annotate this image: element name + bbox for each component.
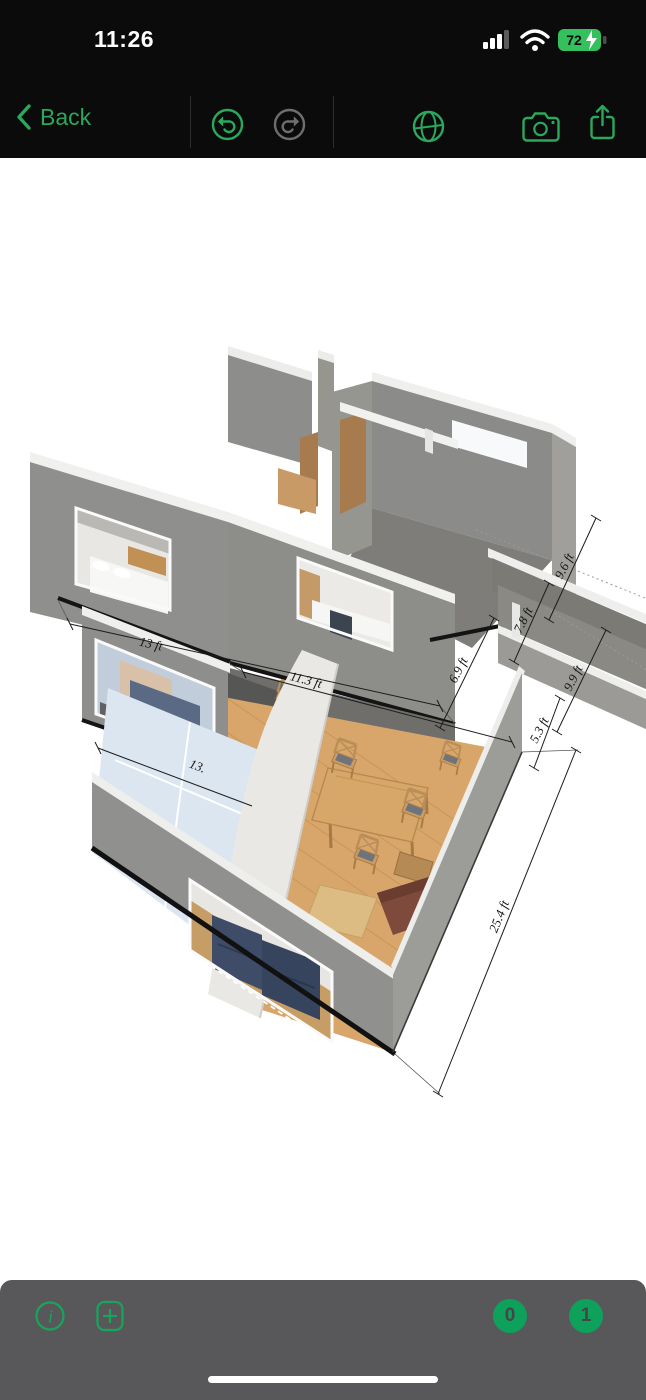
share-icon[interactable]: [589, 104, 616, 141]
back-chevron-icon: [16, 103, 32, 131]
back-button[interactable]: Back: [16, 103, 91, 131]
floor-button-1[interactable]: 1: [569, 1299, 603, 1333]
floor-button-0[interactable]: 0: [493, 1299, 527, 1333]
header-bar: 11:26 72 Back: [0, 0, 646, 158]
camera-icon[interactable]: [522, 112, 560, 142]
back-label: Back: [40, 104, 91, 131]
cellular-signal-icon: [482, 28, 512, 52]
info-icon[interactable]: i: [34, 1300, 66, 1332]
toolbar-divider: [333, 96, 334, 148]
undo-icon[interactable]: [211, 108, 244, 141]
svg-text:i: i: [48, 1307, 53, 1327]
add-item-icon[interactable]: [94, 1300, 126, 1332]
orbit-view-icon[interactable]: [412, 110, 445, 143]
floor-1-label: 1: [581, 1305, 592, 1327]
floorplan-canvas[interactable]: 13 ft 13. 11.3 ft 6.9 ft 7.8 ft 9.6 ft 9…: [0, 158, 646, 1280]
battery-charging-icon: 72: [558, 28, 608, 52]
svg-text:72: 72: [566, 32, 582, 48]
dimension-label: 25.4 ft: [486, 898, 512, 935]
toolbar-divider: [190, 96, 191, 148]
floor-0-label: 0: [505, 1305, 516, 1327]
home-indicator[interactable]: [208, 1376, 438, 1383]
floorplan-3d-view[interactable]: 13 ft 13. 11.3 ft 6.9 ft 7.8 ft 9.6 ft 9…: [0, 158, 646, 1280]
status-icons: 72: [482, 28, 608, 52]
redo-icon[interactable]: [273, 108, 306, 141]
bottom-toolbar: i 0 1: [0, 1280, 646, 1400]
status-time: 11:26: [84, 26, 164, 53]
wifi-icon: [519, 28, 551, 52]
